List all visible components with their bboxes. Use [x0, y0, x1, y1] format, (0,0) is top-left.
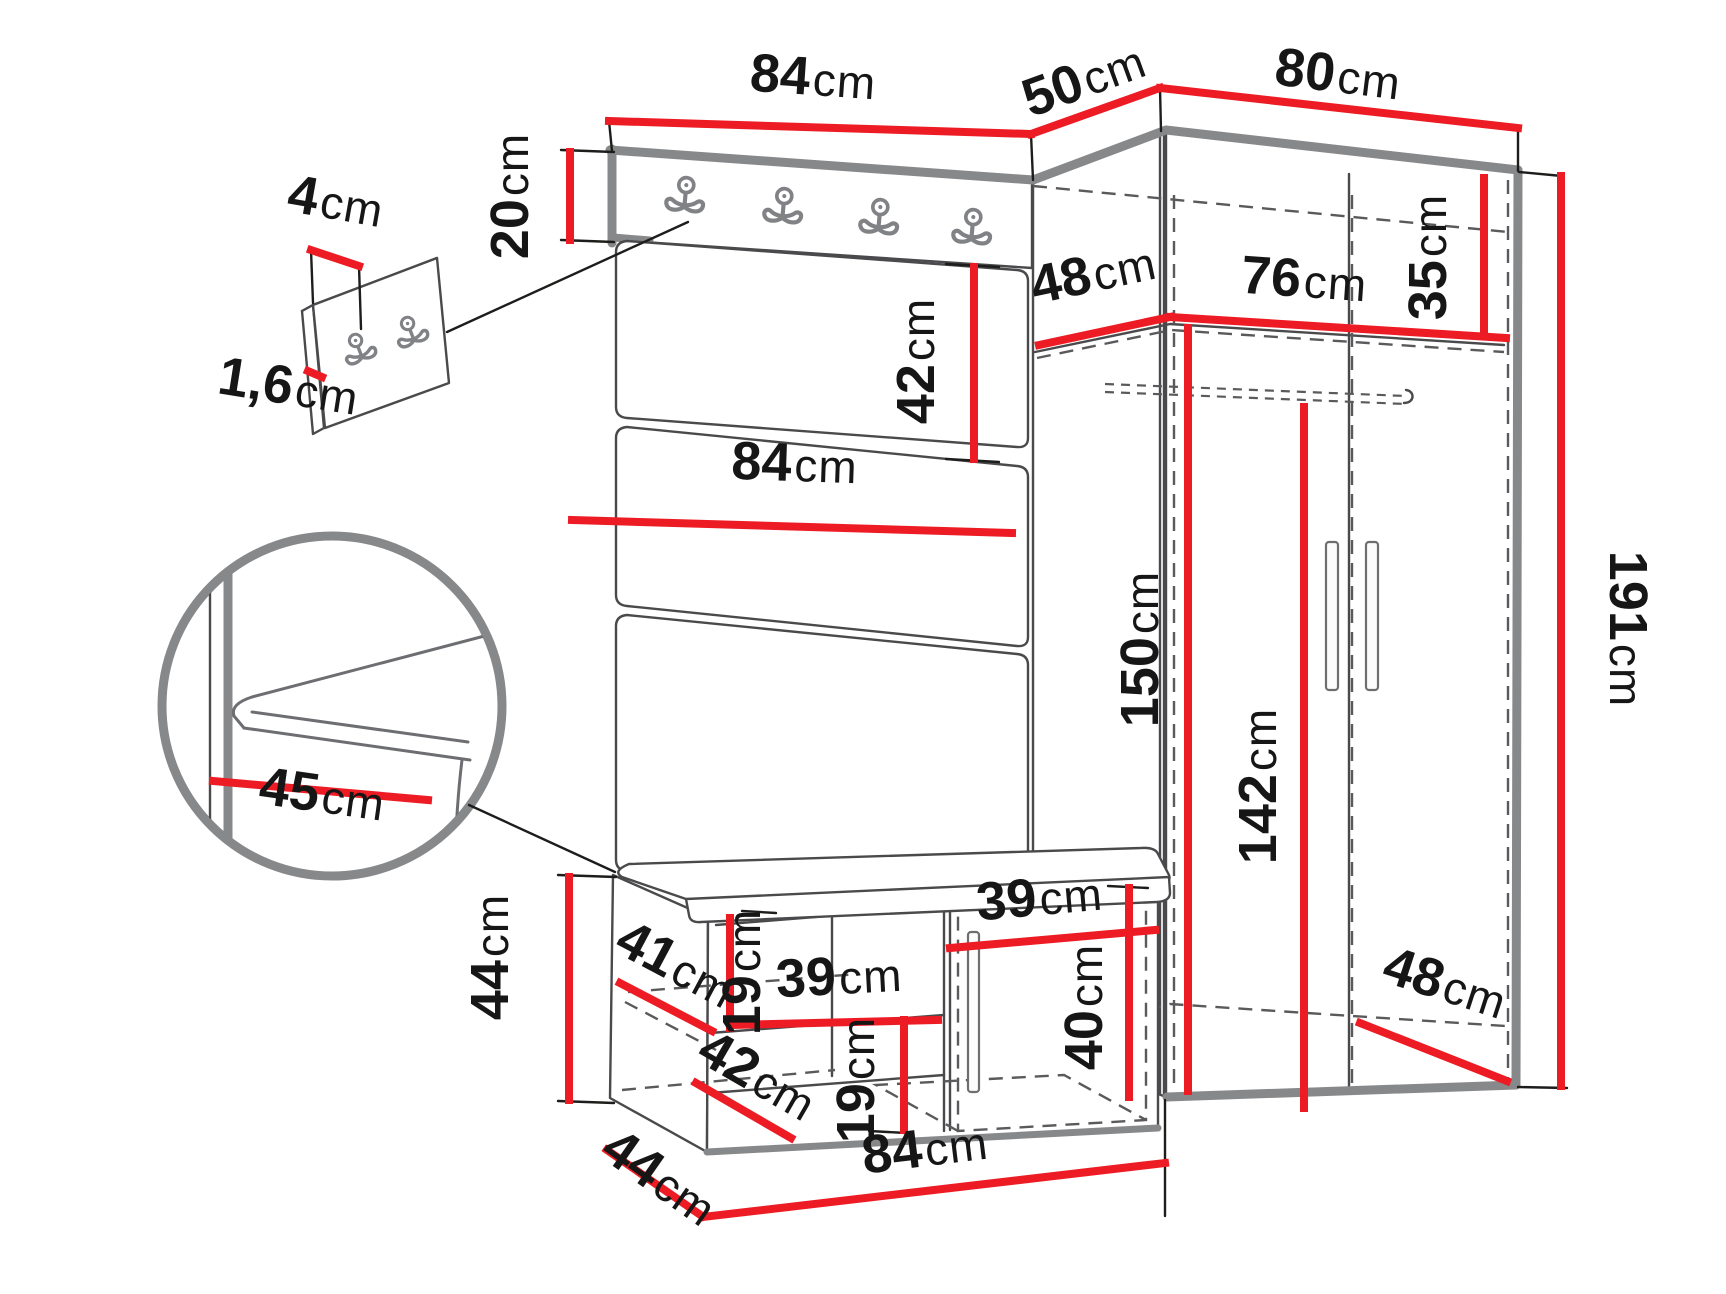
- upholstered-panels: [616, 241, 1028, 900]
- wardrobe-right-edge: [1516, 170, 1518, 1085]
- dim-label-total-height: 191cm: [1598, 551, 1658, 707]
- dim-label-door-height: 142cm: [1228, 708, 1288, 864]
- dim-label-hook-strip-width: 4cm: [283, 163, 388, 239]
- bench-door-handle: [968, 932, 979, 1092]
- upholstered-panel-1: [616, 241, 1028, 447]
- dim-line-hook-strip-width: [311, 250, 359, 266]
- dim-label-bench-door-height: 40cm: [1054, 944, 1114, 1070]
- wardrobe-left-door-handle: [1326, 542, 1338, 690]
- hook-board-corner-stub: [613, 237, 650, 240]
- furniture-dimension-diagram: 84cm 50cm 80cm 20cm 4cm 1,6cm 42cm 48cm …: [0, 0, 1726, 1294]
- dim-label-top-shelf-height: 35cm: [1398, 194, 1458, 320]
- diagram-canvas: 84cm 50cm 80cm 20cm 4cm 1,6cm 42cm 48cm …: [0, 0, 1726, 1294]
- dim-label-interior-height: 150cm: [1110, 571, 1170, 727]
- dim-label-header-height: 20cm: [480, 133, 540, 259]
- wardrobe-right-door-handle: [1366, 542, 1378, 690]
- circle-callout-line: [469, 805, 615, 872]
- dim-label-panel-height: 42cm: [886, 298, 946, 424]
- seat-cushion-detail-circle: [162, 536, 502, 876]
- dim-label-bench-gap-upper: 19cm: [712, 909, 772, 1035]
- detail-circle: [162, 536, 502, 876]
- dim-line-top-width: [609, 121, 1031, 134]
- dim-label-top-width: 84cm: [748, 43, 878, 112]
- dim-label-bench-height: 44cm: [460, 894, 520, 1020]
- dim-label-panel-width: 84cm: [730, 431, 858, 495]
